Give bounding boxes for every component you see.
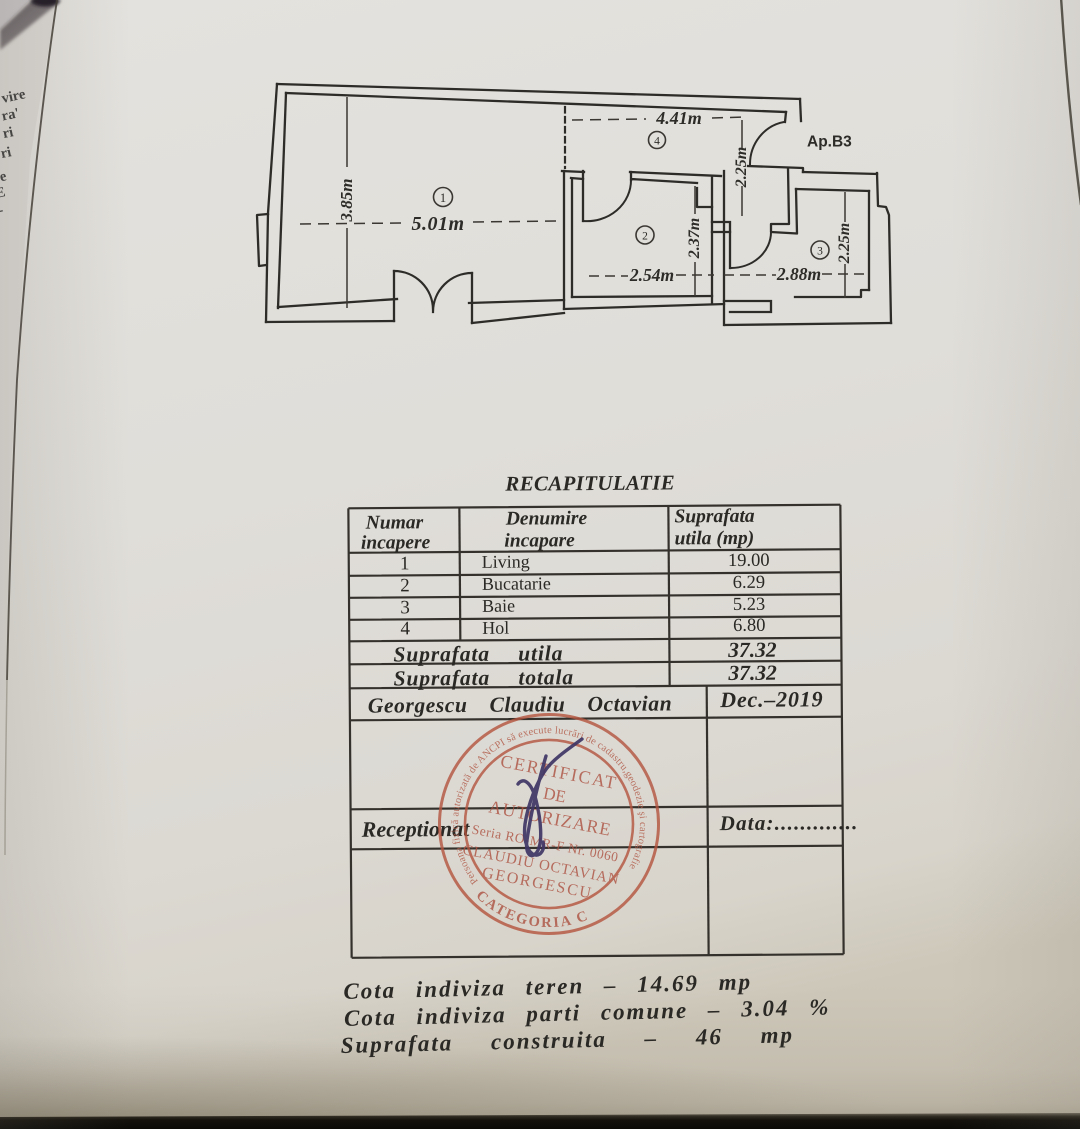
svg-text:Suprafata utila: Suprafata utila <box>393 641 563 666</box>
svg-text:Hol: Hol <box>482 618 509 638</box>
svg-text:Georgescu Claudiu Octavian: Georgescu Claudiu Octavian <box>368 691 673 717</box>
svg-text:2: 2 <box>642 231 648 243</box>
svg-text:1: 1 <box>400 553 410 574</box>
svg-text:3: 3 <box>817 246 823 258</box>
svg-text:2.88m: 2.88m <box>776 264 821 284</box>
svg-text:6.80: 6.80 <box>733 616 766 636</box>
svg-text:2.54m: 2.54m <box>629 265 674 285</box>
svg-text:37.32: 37.32 <box>727 661 777 685</box>
svg-text:2.25m: 2.25m <box>733 147 750 188</box>
svg-text:Baie: Baie <box>482 596 515 616</box>
svg-text:utila (mp): utila (mp) <box>675 528 755 550</box>
svg-text:Data:.............: Data:............. <box>719 810 859 835</box>
svg-text:Suprafata totala: Suprafata totala <box>394 665 575 690</box>
svg-text:incapare: incapare <box>504 530 575 552</box>
svg-text:Ap.B3: Ap.B3 <box>807 134 852 151</box>
svg-text:Living: Living <box>482 551 530 571</box>
svg-text:6.29: 6.29 <box>733 573 766 593</box>
svg-text:19.00: 19.00 <box>728 551 770 571</box>
svg-text:Bucatarie: Bucatarie <box>482 573 551 594</box>
svg-text:37.32: 37.32 <box>727 638 777 662</box>
svg-text:2.25m: 2.25m <box>836 223 853 264</box>
svg-text:Dec.–2019: Dec.–2019 <box>719 686 823 712</box>
svg-text:Denumire: Denumire <box>505 508 588 530</box>
svg-text:Numar: Numar <box>365 512 424 533</box>
svg-text:incapere: incapere <box>361 532 431 554</box>
svg-text:1: 1 <box>440 191 446 205</box>
svg-text:3: 3 <box>400 597 410 618</box>
svg-text:RECAPITULATIE: RECAPITULATIE <box>504 470 675 495</box>
svg-text:3.85m: 3.85m <box>337 179 356 223</box>
svg-text:2: 2 <box>400 575 410 596</box>
svg-text:5.23: 5.23 <box>733 595 766 615</box>
svg-text:2.37m: 2.37m <box>686 218 703 259</box>
svg-text:4: 4 <box>400 618 410 639</box>
svg-text:Suprafata: Suprafata <box>674 506 755 528</box>
svg-text:4: 4 <box>654 136 660 148</box>
svg-text:5.01m: 5.01m <box>411 213 464 235</box>
svg-text:4.41m: 4.41m <box>655 108 702 128</box>
